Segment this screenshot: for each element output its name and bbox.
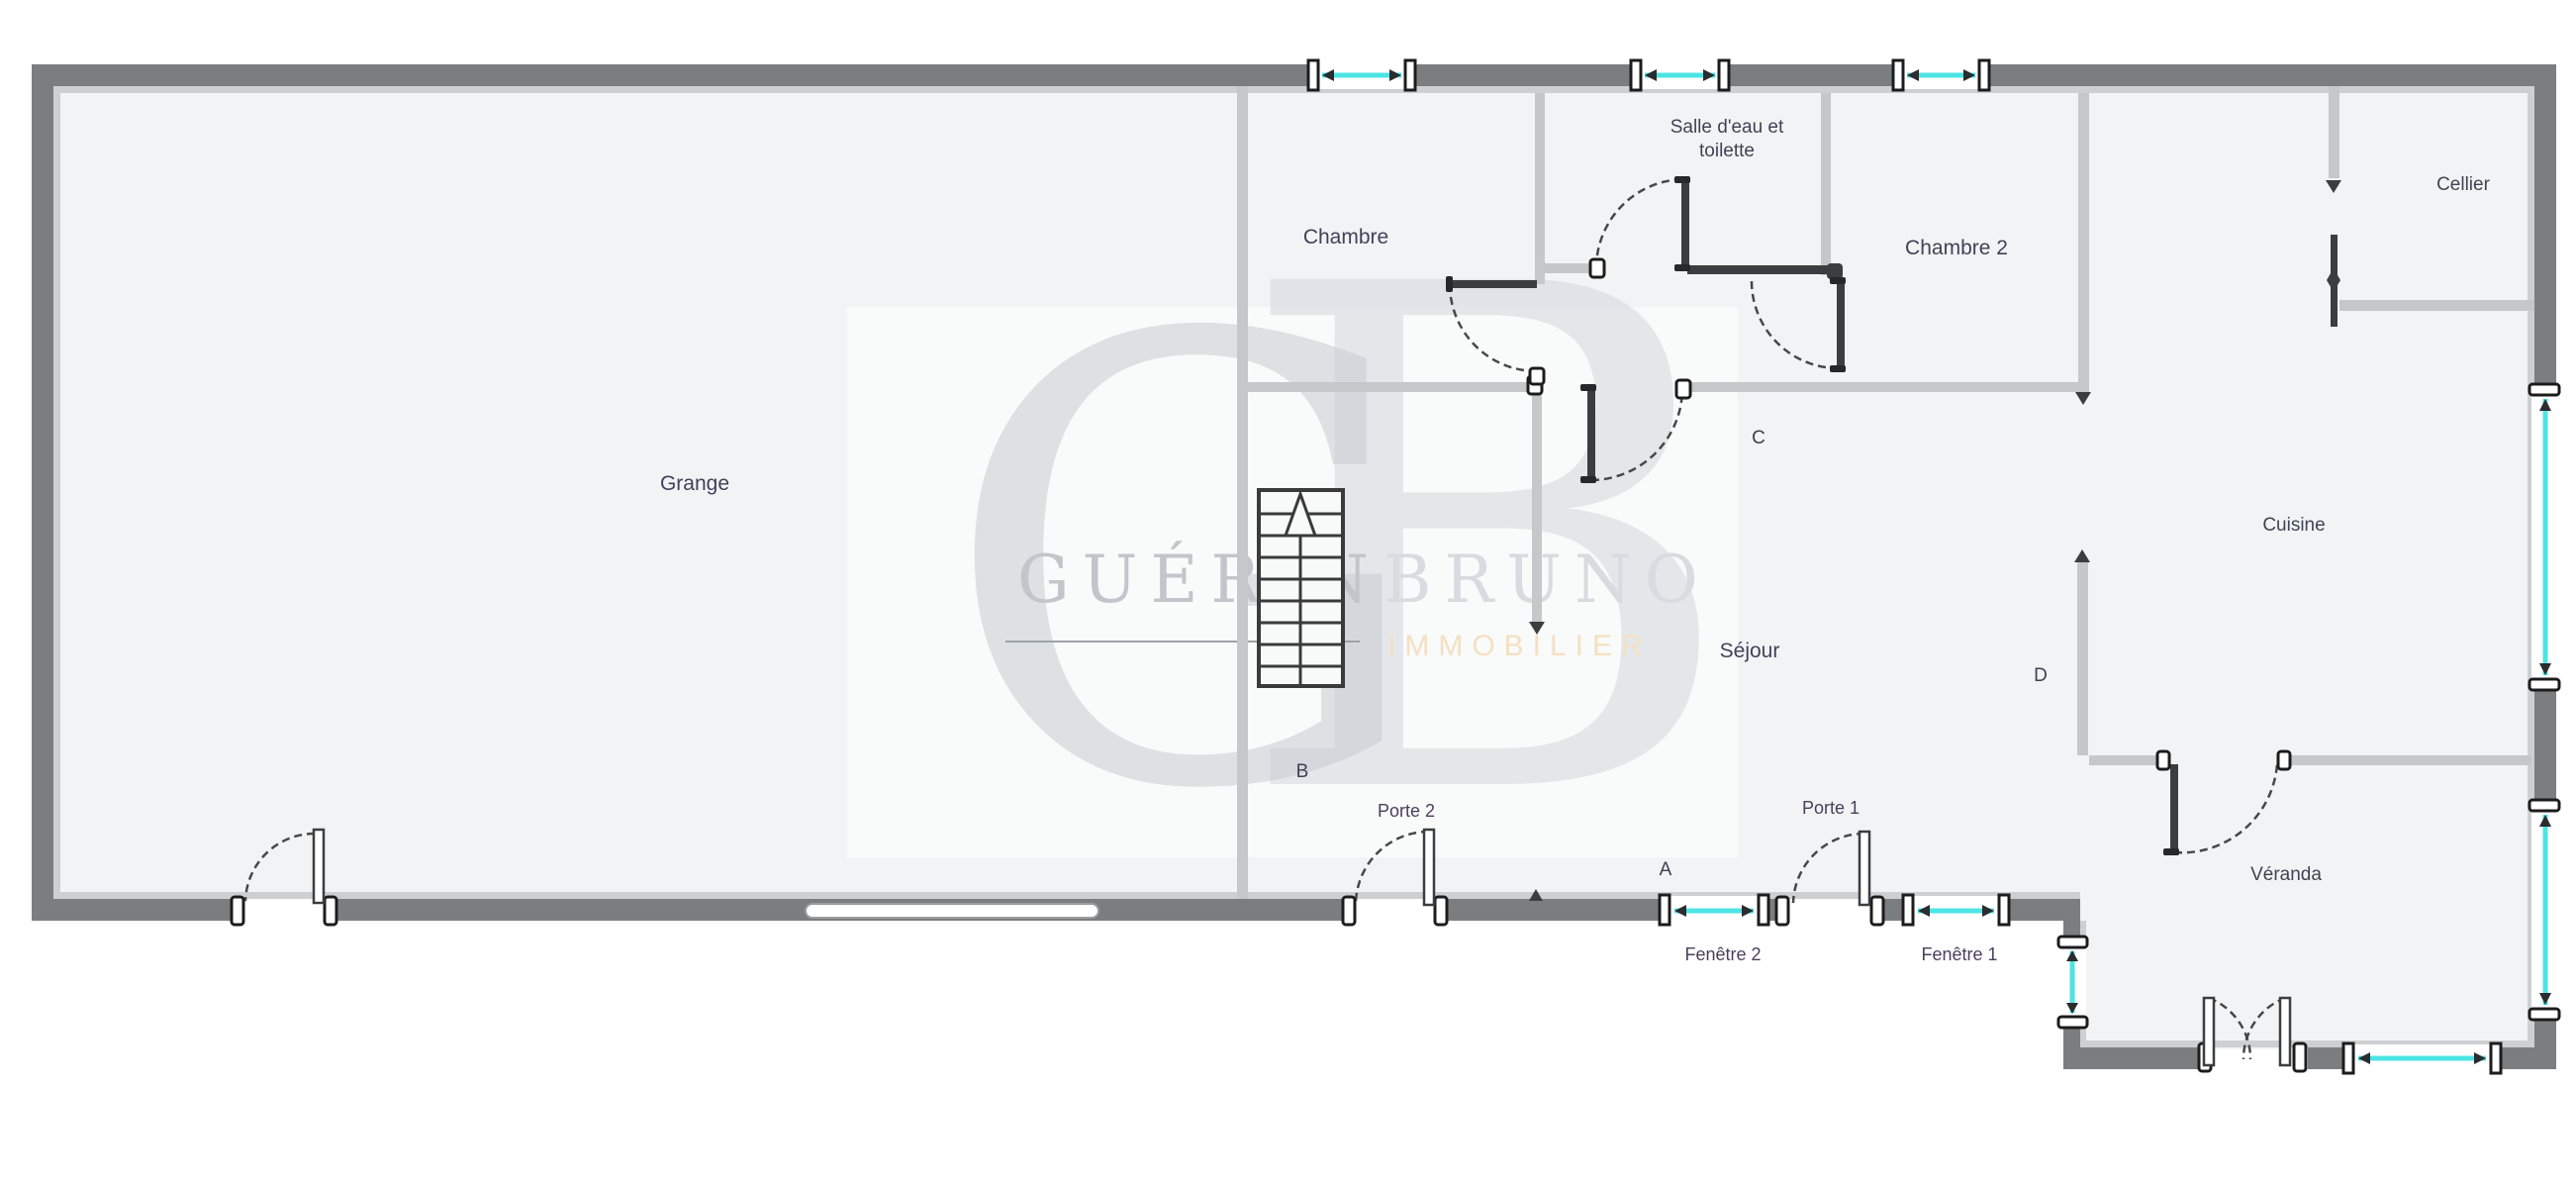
window-veranda-left	[2058, 937, 2087, 1028]
porte2-leaf	[1424, 830, 1434, 905]
window-top-3	[1893, 60, 1989, 90]
label-chambre2: Chambre 2	[1905, 237, 2008, 259]
label-cuisine: Cuisine	[2262, 515, 2325, 536]
window-right-upper	[2529, 384, 2559, 690]
floor-plan-page: G B GUÉRIN BRUNO IMMOBILIER	[0, 0, 2576, 1188]
window-top-2	[1631, 60, 1729, 90]
watermark-tagline-immobilier: IMMOBILIER	[1387, 630, 1652, 662]
label-veranda: Véranda	[2250, 864, 2322, 885]
window-fenetre-2	[1660, 895, 1768, 925]
french-door-right-leaf	[2280, 998, 2290, 1065]
grange-door-leaf	[314, 830, 324, 903]
label-porte2: Porte 2	[1378, 801, 1435, 821]
label-porte1: Porte 1	[1802, 798, 1860, 818]
window-veranda-bottom	[2343, 1043, 2501, 1073]
label-fenetre1: Fenêtre 1	[1921, 944, 1997, 964]
watermark-name-bruno: BRUNO	[1383, 542, 1711, 618]
label-grange: Grange	[660, 472, 729, 495]
label-fenetre2: Fenêtre 2	[1684, 944, 1761, 964]
label-chambre: Chambre	[1303, 226, 1388, 248]
floor-plan-drawing: G B GUÉRIN BRUNO IMMOBILIER	[0, 0, 2576, 1188]
label-marker-c: C	[1752, 428, 1765, 448]
grange-sliding-opening	[806, 904, 1098, 918]
staircase	[1259, 490, 1343, 686]
label-salle-deau-line1: Salle d'eau et	[1670, 117, 1784, 138]
window-fenetre-1	[1903, 895, 2009, 925]
label-marker-b: B	[1296, 761, 1309, 782]
porte1-leaf	[1860, 832, 1869, 905]
french-door-left-leaf	[2204, 998, 2214, 1065]
label-sejour: Séjour	[1720, 640, 1780, 662]
label-salle-deau-line2: toilette	[1699, 141, 1755, 161]
label-marker-a: A	[1660, 859, 1672, 880]
window-right-lower	[2529, 800, 2559, 1020]
label-marker-d: D	[2034, 665, 2048, 686]
label-cellier: Cellier	[2436, 174, 2491, 195]
cellier-door-leaf	[2331, 235, 2337, 327]
window-top-1	[1308, 60, 1415, 90]
